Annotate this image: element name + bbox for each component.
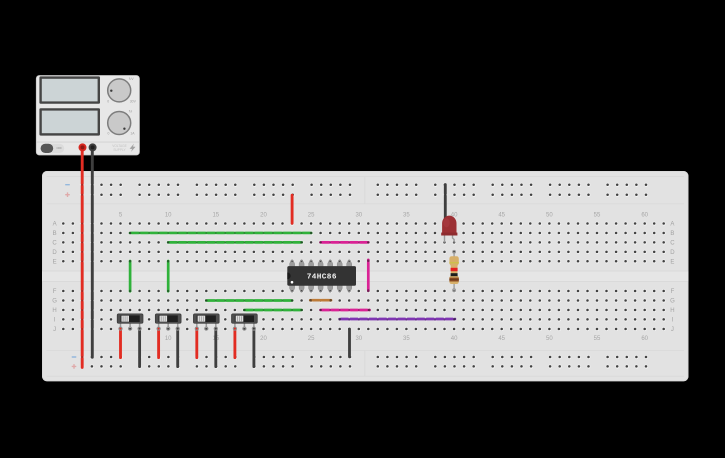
svg-text:20: 20: [260, 212, 267, 218]
svg-text:60: 60: [641, 212, 648, 218]
svg-text:C: C: [670, 241, 675, 247]
svg-text:E: E: [670, 260, 674, 266]
svg-text:15: 15: [212, 212, 219, 218]
svg-text:D: D: [52, 250, 57, 256]
svg-text:D: D: [670, 250, 675, 256]
svg-text:35: 35: [403, 212, 410, 218]
svg-text:H: H: [670, 308, 674, 314]
svg-text:10: 10: [165, 212, 172, 218]
svg-text:G: G: [670, 299, 675, 305]
svg-text:30: 30: [355, 212, 362, 218]
svg-text:B: B: [670, 231, 674, 237]
svg-text:74HC86: 74HC86: [307, 274, 337, 282]
svg-text:E: E: [53, 260, 57, 266]
svg-text:45: 45: [498, 212, 505, 218]
svg-text:40: 40: [451, 336, 458, 342]
svg-text:1A: 1A: [130, 131, 135, 135]
svg-text:60: 60: [641, 336, 648, 342]
svg-text:F: F: [53, 289, 57, 295]
svg-text:25: 25: [308, 336, 315, 342]
svg-text:F: F: [671, 289, 675, 295]
svg-text:J: J: [671, 327, 674, 333]
svg-text:10: 10: [165, 336, 172, 342]
svg-text:OFF: OFF: [57, 146, 63, 150]
svg-text:A: A: [670, 222, 674, 228]
svg-text:55: 55: [594, 212, 601, 218]
svg-text:H: H: [52, 308, 56, 314]
svg-text:25: 25: [308, 212, 315, 218]
svg-text:SUPPLY: SUPPLY: [113, 148, 126, 152]
svg-text:20: 20: [260, 336, 267, 342]
svg-text:55: 55: [594, 336, 601, 342]
svg-text:50: 50: [546, 336, 553, 342]
svg-text:J: J: [53, 327, 56, 333]
svg-text:B: B: [53, 231, 57, 237]
svg-text:30V: 30V: [130, 99, 137, 103]
svg-text:C: C: [52, 241, 57, 247]
svg-text:0: 0: [108, 132, 110, 136]
svg-text:50: 50: [546, 212, 553, 218]
svg-text:0: 0: [107, 99, 109, 103]
svg-text:↻I: ↻I: [129, 110, 133, 114]
svg-text:45: 45: [498, 336, 505, 342]
svg-text:30: 30: [355, 336, 362, 342]
svg-text:↻V: ↻V: [129, 77, 135, 81]
svg-text:A: A: [53, 222, 57, 228]
svg-text:35: 35: [403, 336, 410, 342]
svg-text:G: G: [52, 299, 57, 305]
